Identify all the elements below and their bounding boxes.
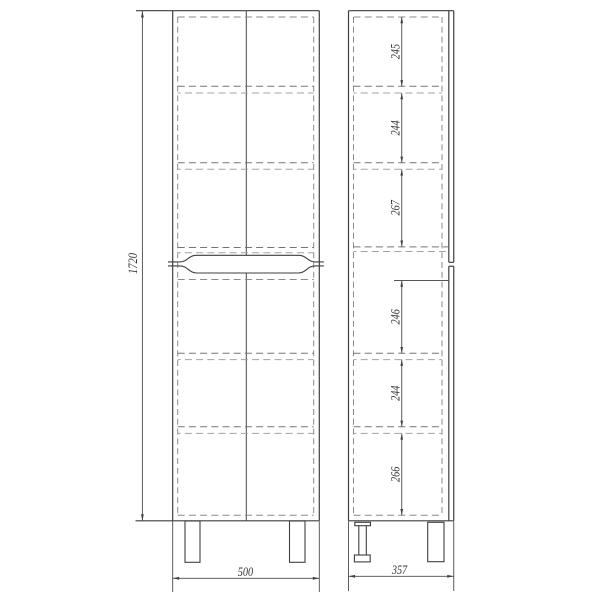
svg-text:246: 246 xyxy=(389,309,403,325)
svg-text:244: 244 xyxy=(389,386,403,401)
svg-text:267: 267 xyxy=(389,200,403,216)
svg-text:266: 266 xyxy=(389,466,403,482)
svg-text:245: 245 xyxy=(389,44,403,59)
svg-text:1720: 1720 xyxy=(126,252,140,274)
svg-text:500: 500 xyxy=(238,565,254,579)
svg-text:357: 357 xyxy=(391,563,408,577)
svg-text:244: 244 xyxy=(389,120,403,135)
